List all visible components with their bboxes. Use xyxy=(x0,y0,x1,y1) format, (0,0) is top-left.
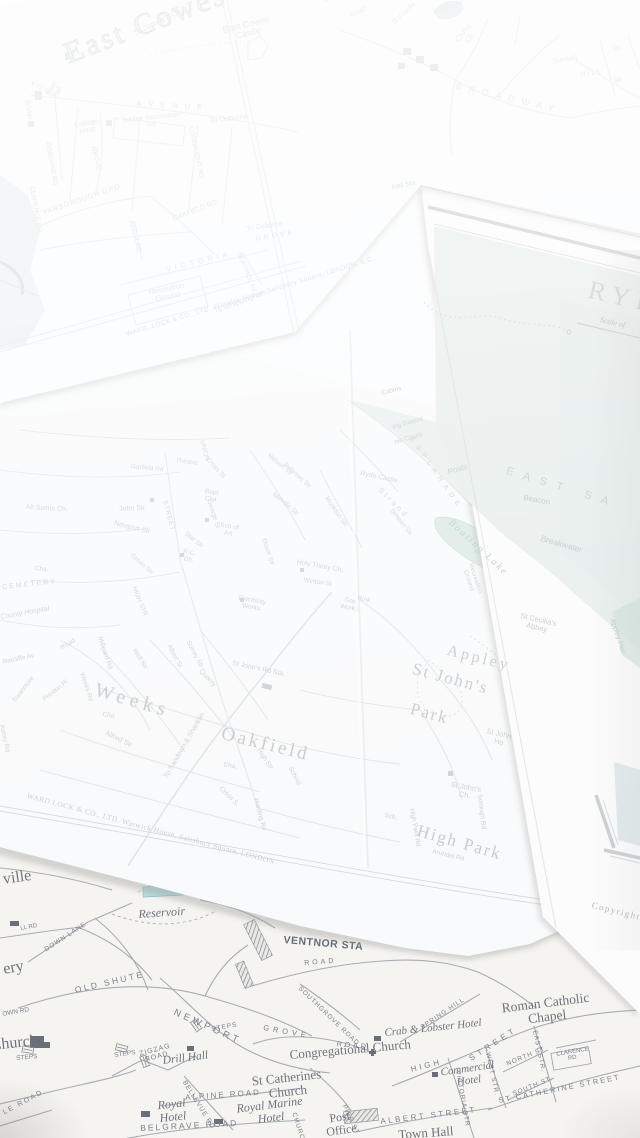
photo-of-vintage-maps: ville Reservoir DOWN LANE LL RD ery OLD … xyxy=(0,0,640,1138)
paper-creases xyxy=(0,0,640,1138)
